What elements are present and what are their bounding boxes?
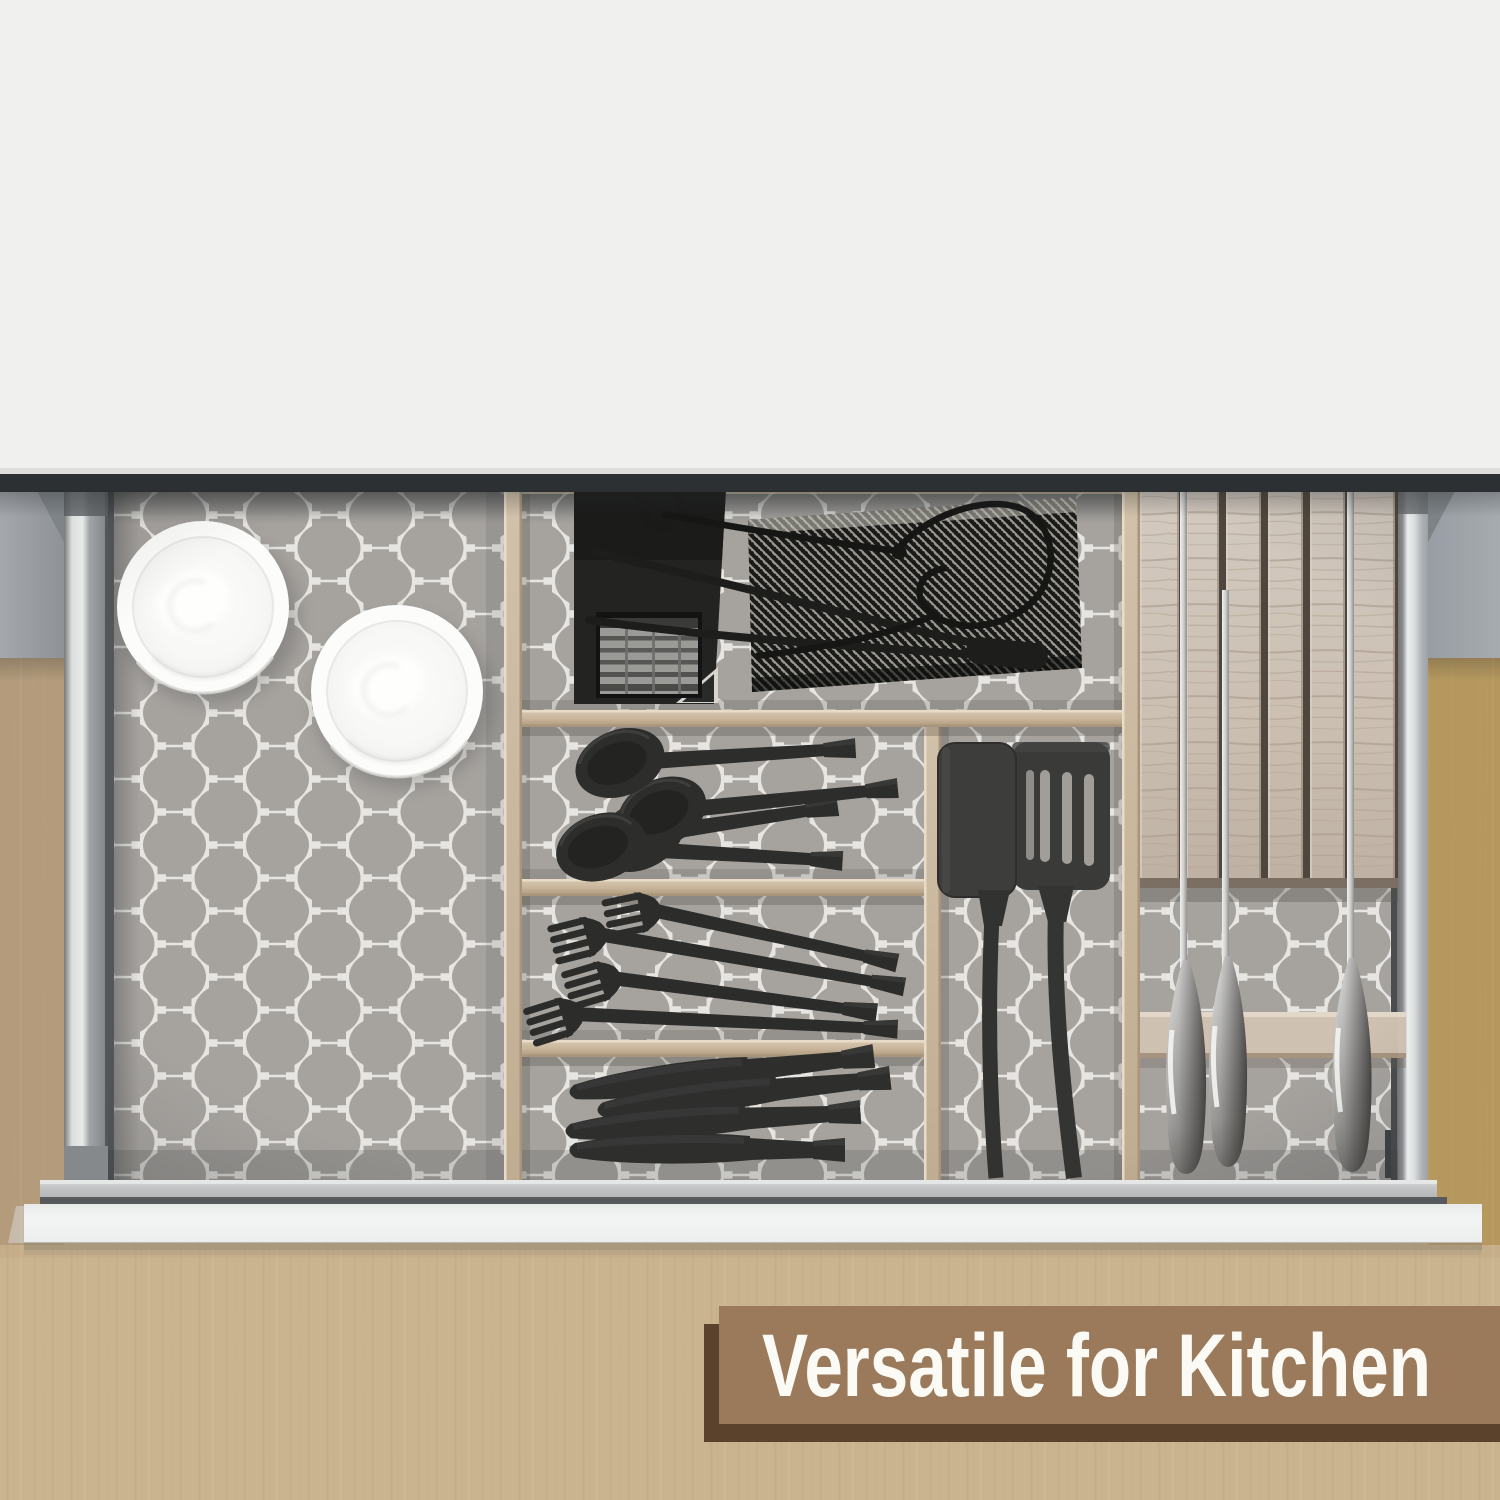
svg-text:Versatile for Kitchen: Versatile for Kitchen — [762, 1315, 1431, 1415]
